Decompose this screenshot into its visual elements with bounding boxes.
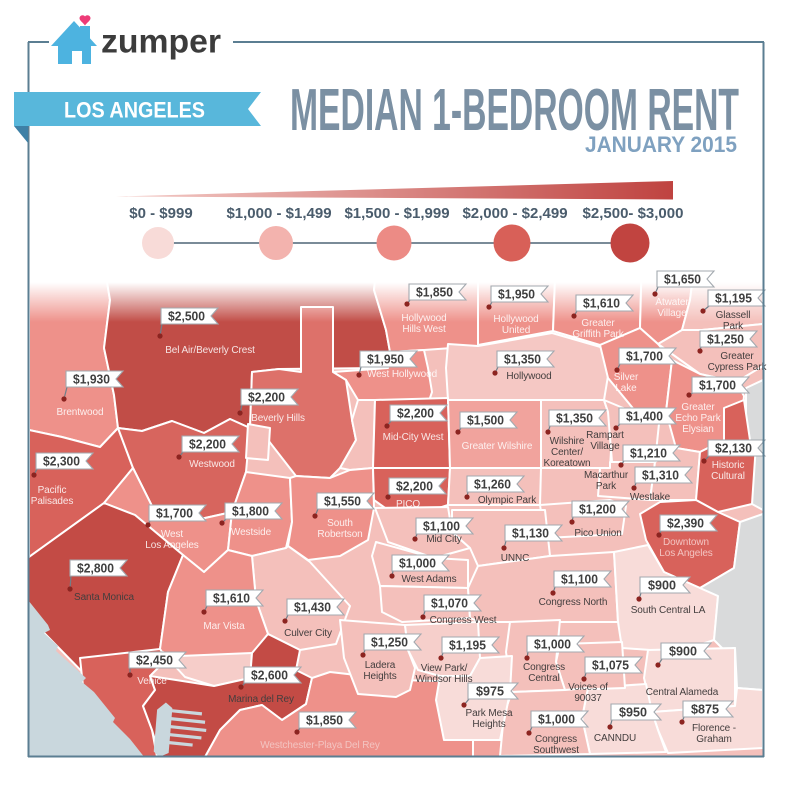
svg-text:$1,200: $1,200 <box>579 502 616 517</box>
svg-text:CANNDU: CANNDU <box>594 733 636 744</box>
svg-text:Greater Wilshire: Greater Wilshire <box>462 441 533 452</box>
svg-text:Heights: Heights <box>472 719 505 730</box>
svg-text:Hollywood: Hollywood <box>401 313 446 324</box>
svg-text:$1,310: $1,310 <box>642 468 679 483</box>
svg-text:Glassell: Glassell <box>716 310 751 321</box>
svg-text:$975: $975 <box>476 684 504 699</box>
svg-text:$1,000 - $1,499: $1,000 - $1,499 <box>226 205 331 222</box>
svg-text:$1,650: $1,650 <box>664 272 701 287</box>
svg-text:$1,700: $1,700 <box>699 378 736 393</box>
svg-text:$2,000 - $2,499: $2,000 - $2,499 <box>462 205 567 222</box>
svg-text:Greater: Greater <box>720 351 754 362</box>
svg-text:Florence -: Florence - <box>692 723 736 734</box>
svg-text:Westlake: Westlake <box>630 492 671 503</box>
svg-text:Village: Village <box>657 308 687 319</box>
svg-text:Graham: Graham <box>696 734 732 745</box>
svg-text:Greater: Greater <box>681 402 715 413</box>
svg-text:Bel Air/Beverly Crest: Bel Air/Beverly Crest <box>165 345 255 356</box>
svg-text:$1,850: $1,850 <box>416 285 453 300</box>
svg-text:$2,390: $2,390 <box>667 516 704 531</box>
svg-text:$1,400: $1,400 <box>626 409 663 424</box>
svg-text:$1,130: $1,130 <box>512 526 549 541</box>
svg-text:$1,430: $1,430 <box>294 600 331 615</box>
svg-text:LOS ANGELES: LOS ANGELES <box>64 98 205 123</box>
svg-text:$1,700: $1,700 <box>626 349 663 364</box>
svg-text:Lake: Lake <box>615 383 637 394</box>
svg-text:$1,070: $1,070 <box>431 596 468 611</box>
svg-text:United: United <box>502 325 530 336</box>
svg-text:Congress West: Congress West <box>430 615 497 626</box>
svg-text:Center/: Center/ <box>551 447 583 458</box>
svg-text:Echo Park: Echo Park <box>675 413 721 424</box>
svg-text:Voices of: Voices of <box>568 682 608 693</box>
svg-text:Central Alameda: Central Alameda <box>646 687 719 698</box>
svg-text:Pico Union: Pico Union <box>574 528 621 539</box>
svg-text:Brentwood: Brentwood <box>57 407 104 418</box>
svg-text:$1,195: $1,195 <box>449 638 486 653</box>
svg-text:Beverly Hills: Beverly Hills <box>251 413 305 424</box>
svg-text:Hollywood: Hollywood <box>493 314 538 325</box>
svg-text:JANUARY 2015: JANUARY 2015 <box>585 132 737 157</box>
svg-text:Westwood: Westwood <box>189 459 235 470</box>
svg-text:West Hollywood: West Hollywood <box>367 369 437 380</box>
svg-text:$1,350: $1,350 <box>504 352 541 367</box>
svg-text:$1,610: $1,610 <box>213 591 250 606</box>
svg-text:Congress North: Congress North <box>539 597 608 608</box>
svg-text:$1,800: $1,800 <box>232 504 269 519</box>
svg-text:$2,300: $2,300 <box>43 454 80 469</box>
svg-text:$1,000: $1,000 <box>534 637 571 652</box>
svg-text:$1,500: $1,500 <box>467 413 504 428</box>
svg-text:Westside: Westside <box>231 527 272 538</box>
svg-text:$900: $900 <box>648 578 676 593</box>
svg-text:Cultural: Cultural <box>711 471 745 482</box>
svg-text:Hills West: Hills West <box>402 324 446 335</box>
svg-text:Mid-City West: Mid-City West <box>383 432 444 443</box>
svg-text:$2,200: $2,200 <box>248 390 285 405</box>
svg-text:Palisades: Palisades <box>31 496 74 507</box>
svg-text:Park Mesa: Park Mesa <box>466 708 513 719</box>
svg-text:$950: $950 <box>619 705 647 720</box>
svg-text:$2,800: $2,800 <box>77 561 114 576</box>
svg-text:Venice: Venice <box>137 676 167 687</box>
svg-text:Downtown: Downtown <box>663 537 709 548</box>
svg-text:$1,250: $1,250 <box>707 332 744 347</box>
svg-text:$1,000: $1,000 <box>538 712 575 727</box>
svg-text:Westchester-Playa Del Rey: Westchester-Playa Del Rey <box>260 740 380 751</box>
svg-text:$1,210: $1,210 <box>630 446 667 461</box>
svg-text:Central: Central <box>528 673 560 684</box>
svg-text:Ladera: Ladera <box>365 660 396 671</box>
svg-text:$2,200: $2,200 <box>397 406 434 421</box>
svg-text:zumper: zumper <box>101 23 221 60</box>
svg-text:Robertson: Robertson <box>317 529 362 540</box>
svg-text:$1,930: $1,930 <box>73 372 110 387</box>
svg-text:Griffith Park: Griffith Park <box>572 329 624 340</box>
svg-text:$2,200: $2,200 <box>396 479 433 494</box>
svg-text:Macarthur: Macarthur <box>584 470 629 481</box>
svg-text:PICO: PICO <box>396 499 420 510</box>
svg-text:$1,850: $1,850 <box>306 713 343 728</box>
svg-text:UNNC: UNNC <box>501 553 530 564</box>
svg-text:Windsor Hills: Windsor Hills <box>415 674 472 685</box>
svg-text:Marina del Rey: Marina del Rey <box>228 694 294 705</box>
svg-text:Mar Vista: Mar Vista <box>203 621 245 632</box>
svg-text:South Central LA: South Central LA <box>631 605 706 616</box>
svg-text:Heights: Heights <box>363 671 396 682</box>
svg-text:Pacific: Pacific <box>38 485 67 496</box>
svg-text:Congress: Congress <box>523 662 565 673</box>
svg-text:West Adams: West Adams <box>402 574 457 585</box>
svg-text:Park: Park <box>596 481 617 492</box>
svg-text:$2,600: $2,600 <box>251 668 288 683</box>
svg-text:$2,450: $2,450 <box>136 653 173 668</box>
svg-text:$0 - $999: $0 - $999 <box>129 205 192 222</box>
svg-text:$1,700: $1,700 <box>156 506 193 521</box>
svg-text:Atwater: Atwater <box>655 297 689 308</box>
svg-text:South: South <box>327 518 353 529</box>
svg-text:$1,950: $1,950 <box>498 287 535 302</box>
svg-text:$1,950: $1,950 <box>367 352 404 367</box>
svg-text:$2,500: $2,500 <box>168 309 205 324</box>
svg-text:Mid City: Mid City <box>426 534 461 545</box>
svg-text:Hollywood: Hollywood <box>506 371 551 382</box>
svg-text:$2,130: $2,130 <box>715 441 752 456</box>
svg-text:$1,550: $1,550 <box>324 494 361 509</box>
svg-text:Historic: Historic <box>712 460 745 471</box>
svg-text:Silver: Silver <box>614 372 639 383</box>
svg-text:Koreatown: Koreatown <box>544 458 591 469</box>
svg-text:Wilshire: Wilshire <box>550 436 585 447</box>
svg-text:$875: $875 <box>691 702 719 717</box>
svg-text:Los Angeles: Los Angeles <box>659 548 712 559</box>
svg-text:$1,100: $1,100 <box>561 572 598 587</box>
svg-text:Cypress Park: Cypress Park <box>708 362 768 373</box>
svg-text:90037: 90037 <box>574 693 602 704</box>
svg-text:Elysian: Elysian <box>682 424 714 435</box>
svg-text:West: West <box>161 529 184 540</box>
svg-text:$1,500 - $1,999: $1,500 - $1,999 <box>344 205 449 222</box>
svg-text:$900: $900 <box>669 644 697 659</box>
svg-text:View Park/: View Park/ <box>421 663 468 674</box>
svg-text:$1,610: $1,610 <box>583 296 620 311</box>
svg-text:Park: Park <box>723 321 744 332</box>
svg-text:Southwest: Southwest <box>533 745 579 756</box>
svg-text:Olympic Park: Olympic Park <box>478 495 537 506</box>
svg-text:Greater: Greater <box>581 318 615 329</box>
svg-text:$1,000: $1,000 <box>399 556 436 571</box>
svg-text:Congress: Congress <box>535 734 577 745</box>
svg-text:Rampart: Rampart <box>586 430 624 441</box>
svg-text:Village: Village <box>590 441 620 452</box>
svg-text:$1,250: $1,250 <box>371 635 408 650</box>
svg-text:$1,100: $1,100 <box>423 519 460 534</box>
svg-text:$1,260: $1,260 <box>474 477 511 492</box>
svg-text:Culver City: Culver City <box>284 628 332 639</box>
svg-text:$2,200: $2,200 <box>189 437 226 452</box>
svg-text:$2,500- $3,000: $2,500- $3,000 <box>583 205 684 222</box>
svg-text:$1,195: $1,195 <box>715 291 752 306</box>
svg-text:Santa Monica: Santa Monica <box>74 592 134 603</box>
svg-text:$1,350: $1,350 <box>556 411 593 426</box>
svg-text:$1,075: $1,075 <box>592 658 629 673</box>
svg-text:Los Angeles: Los Angeles <box>145 540 198 551</box>
